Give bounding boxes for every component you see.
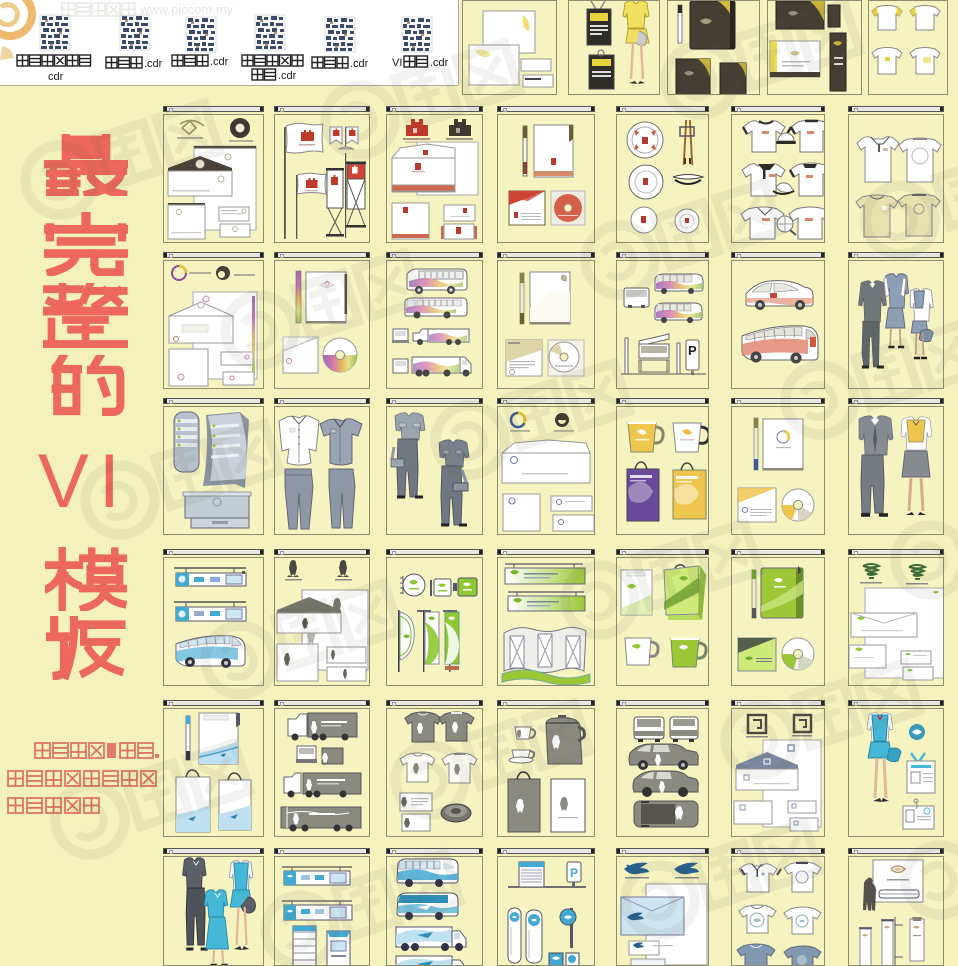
svg-text:.cdr: .cdr	[278, 70, 297, 82]
svg-text:VI: VI	[392, 57, 402, 69]
svg-text:.cdr: .cdr	[430, 57, 449, 69]
svg-text:.cdr: .cdr	[350, 58, 369, 70]
svg-text:P: P	[570, 866, 578, 880]
svg-text:.cdr: .cdr	[210, 56, 229, 68]
svg-text:P: P	[688, 343, 697, 358]
